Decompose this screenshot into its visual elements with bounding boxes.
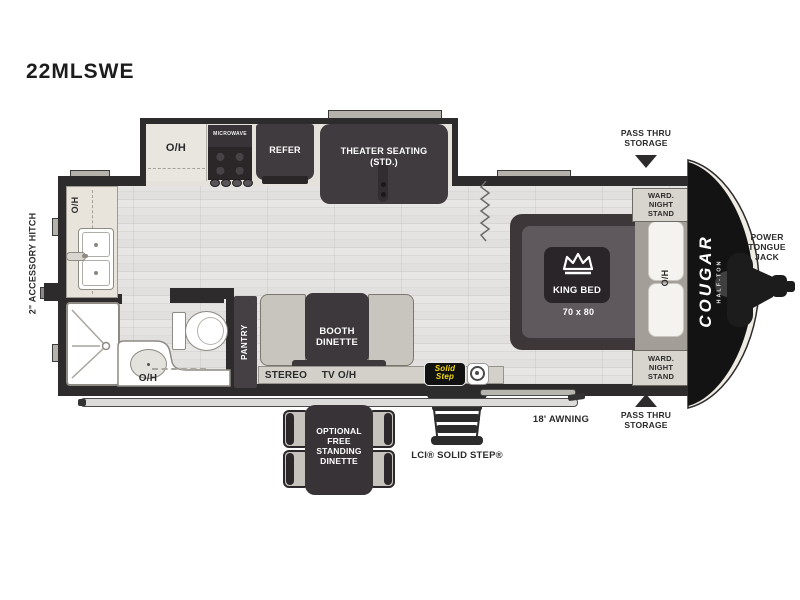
floorplan-canvas: 22MLSWE 2" ACCESSORY HITCH O/H MICROWAVE…	[0, 0, 800, 600]
awning-rail-end-right	[568, 393, 586, 401]
sink-drain	[94, 271, 98, 275]
booth-bench-right	[368, 294, 414, 366]
brand-logo: COUGAR	[696, 216, 716, 346]
pantry-label: PANTRY	[240, 302, 252, 382]
king-bed-size-label: 70 x 80	[522, 307, 635, 318]
stove-knob	[243, 179, 253, 187]
wall-bath-partition	[170, 288, 234, 299]
stove-knob	[221, 179, 231, 187]
booth-bench-left	[260, 294, 306, 366]
booth-dinette-label: BOOTH DINETTE	[303, 326, 371, 348]
awning-rail-upper	[480, 389, 576, 396]
solid-step-caption: LCI® SOLID STEP®	[402, 450, 512, 461]
arrow-down-icon	[635, 155, 657, 168]
cupholder	[381, 192, 386, 197]
stove-knob	[232, 179, 242, 187]
wall-top-left	[58, 176, 146, 186]
faucet-stem	[82, 254, 88, 258]
shower-marks	[66, 302, 120, 386]
pass-thru-bottom-label: PASS THRU STORAGE	[606, 410, 686, 430]
microwave-label: MICROWAVE	[208, 132, 252, 138]
counter-overhead-label: O/H	[70, 190, 82, 220]
accessory-hitch-label: 2" ACCESSORY HITCH	[28, 179, 41, 349]
theater-seating-label: THEATER SEATING (STD.)	[320, 146, 448, 167]
accessory-hitch	[44, 283, 60, 301]
bath-sink-drain	[147, 363, 150, 366]
optional-dinette-label: OPTIONAL FREE STANDING DINETTE	[303, 426, 375, 466]
page-title: 22MLSWE	[26, 60, 166, 85]
sink-drain	[94, 243, 98, 247]
cupholder	[381, 182, 386, 187]
refrigerator-door	[262, 176, 308, 184]
stereo-label: STEREO	[260, 370, 312, 382]
tv-overhead-label: TV O/H	[314, 370, 364, 382]
arrow-up-icon	[635, 394, 657, 407]
king-bed-label: KING BED	[544, 285, 610, 296]
wall-bath-partition-lip	[170, 299, 224, 303]
lci-circle-dot	[475, 371, 479, 375]
crown-icon	[559, 252, 597, 278]
awning-rail-end-left	[78, 399, 86, 406]
bath-overhead-label: O/H	[131, 373, 165, 385]
bath-door-track	[152, 368, 206, 370]
cabinet-dash-line	[148, 168, 205, 169]
zigzag-curtain	[478, 181, 494, 243]
pass-thru-top-label: PASS THRU STORAGE	[606, 128, 686, 148]
overhead-cabinet-label: O/H	[146, 142, 206, 155]
stove-knob	[210, 179, 220, 187]
power-tongue-jack-label: POWER TONGUE JACK	[731, 232, 800, 262]
awning-label: 18' AWNING	[524, 414, 598, 425]
stove	[208, 147, 252, 180]
refrigerator-label: REFER	[256, 145, 314, 156]
solid-step-logo-text: Solid Step	[424, 365, 466, 382]
